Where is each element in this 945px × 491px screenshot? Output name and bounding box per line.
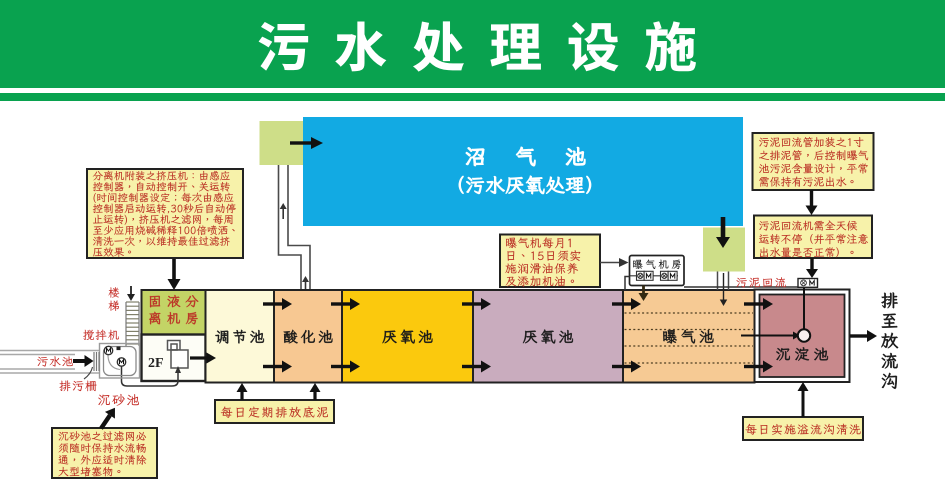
svg-text:2F: 2F [148,356,164,371]
